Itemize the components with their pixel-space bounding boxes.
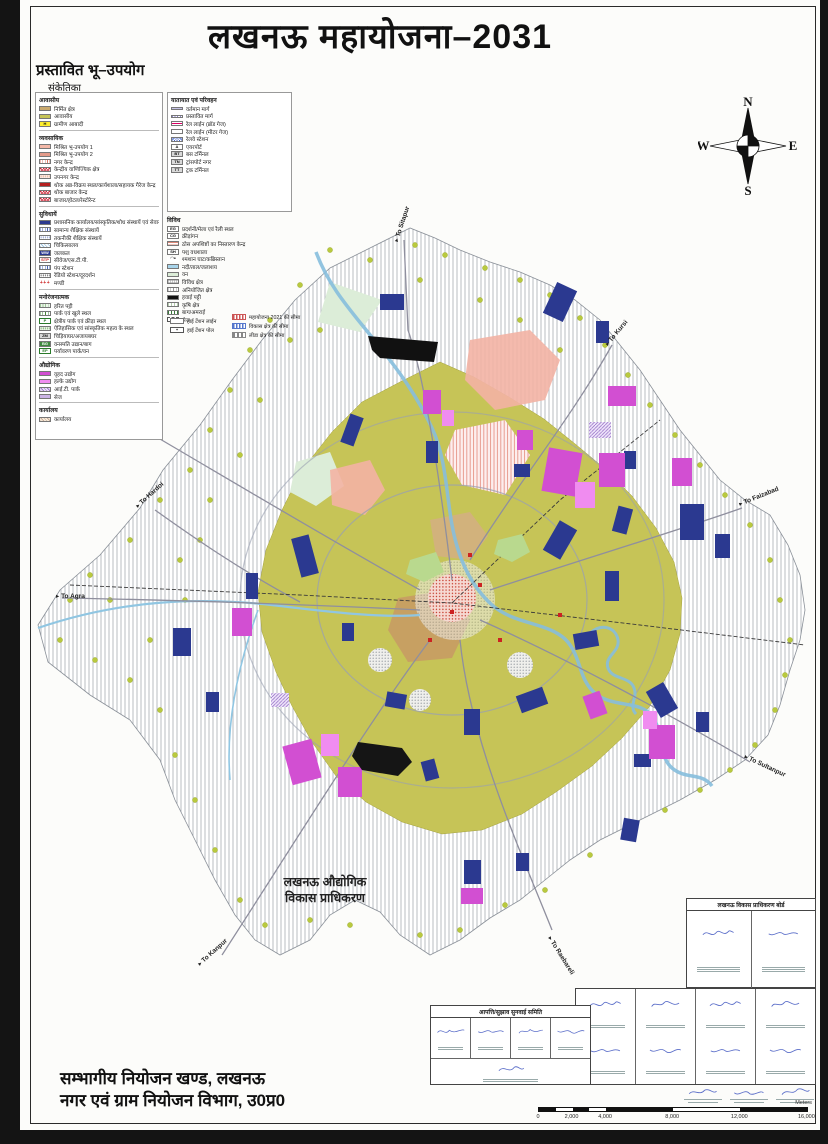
agri-swatch [167, 302, 179, 307]
p-hatch-pink-swatch [39, 159, 51, 164]
legend-item-label: वर्तमान मार्ग [186, 105, 209, 113]
p-hatch-orange-swatch [167, 241, 179, 246]
p-dots-pink-swatch [39, 174, 51, 179]
legend-ht-lines: हाई टेंशन लाईन+हाई टेंशन पोल [170, 316, 230, 334]
legend-item-label: हाई टेंशन लाईन [187, 317, 216, 325]
legend-item-label: ऐतिहासिक एवं सांस्कृतिक महत्व के स्थल [54, 325, 134, 333]
legend-item-label: सेज [54, 393, 62, 401]
legend-item-label: प्रशासनिक कार्यालय/सांस्कृतिक/शोध संस्था… [54, 219, 159, 227]
ind2-swatch [39, 379, 51, 384]
legend-item-label: पार्क एवं खुले स्थल [54, 309, 91, 317]
signature-cell [471, 1018, 511, 1058]
legend-item-label: विविध क्षेत्र [182, 278, 203, 286]
legend-item: BTबस टर्मिनल [171, 151, 288, 159]
legend-item: प्रस्तावित मार्ग [171, 113, 288, 121]
legend-item-label: एयरपोर्ट [186, 143, 202, 151]
legend-item: बाजार/होटल/रेस्टोरेन्ट [39, 196, 159, 204]
p-vlines-grey-swatch [167, 287, 179, 292]
legend-boundaries: महायोजना 2021 की सीमाविकास क्षेत्र की सी… [232, 312, 310, 339]
p-dots-green-swatch [39, 326, 51, 331]
legend-item: आवासीय [39, 113, 159, 121]
sez-swatch [39, 394, 51, 399]
legend-item: हरित पट्टी [39, 302, 159, 310]
legend-item-label: श्मशान घाट/कब्रिस्तान [182, 255, 225, 263]
legend-item: रेल लाईन (ब्रॉड गेज) [171, 120, 288, 128]
legend-panel-landuse: आवासीयनिर्मित क्षेत्रआवासीयHग्रामीण आबाद… [35, 92, 163, 440]
compass-rose: N S E W [698, 96, 798, 196]
lt-grey-swatch: TT [171, 167, 183, 173]
legend-item-label: वनस्पति उद्यान/बाग [54, 340, 92, 348]
legend-item: रेडियो स्टेशन/दूरदर्शन [39, 272, 159, 280]
legend-item-label: प्रस्तावित मार्ग [186, 113, 213, 121]
lt-green-swatch: BG [39, 341, 51, 347]
compass-w: W [698, 138, 710, 153]
p-vlines-blue-swatch [39, 265, 51, 270]
compass-n: N [743, 96, 753, 109]
scale-tick-label: 16,000 [798, 1114, 815, 1120]
legend-item-label: हल्के उद्योग [54, 378, 76, 386]
scale-tick-label: 12,000 [731, 1114, 748, 1120]
signature-cell [551, 1018, 590, 1058]
metro-x-swatch [171, 137, 183, 142]
p-dots-black-swatch [39, 273, 51, 278]
legend-item: STPसीवेज/एस.टी.पी. [39, 257, 159, 265]
scale-bar-blocks [538, 1107, 808, 1112]
legend-item: TNट्रांसपोर्ट नगर [171, 158, 288, 166]
legend-item-label: मण्डी [54, 279, 64, 287]
legend-item-label: महायोजना 2021 की सीमा [249, 313, 300, 321]
p-hatch-purple-swatch [39, 387, 51, 392]
legend-section: आवासीयनिर्मित क्षेत्रआवासीयHग्रामीण आबाद… [39, 96, 159, 131]
lt-white-swatch: A [171, 144, 183, 150]
legend-item: वर्तमान मार्ग [171, 105, 288, 113]
legend-item: निर्मित क्षेत्र [39, 105, 159, 113]
legend-item-label: तकनीकी शैक्षिक संस्थायें [54, 234, 102, 242]
scale-tick-label: 4,000 [598, 1114, 612, 1120]
publisher-block: सम्भागीय नियोजन खण्ड, लखनऊ नगर एवं ग्राम… [60, 1068, 285, 1112]
legend-item-label: आवासीय [54, 113, 72, 121]
committee-table-header: आपत्ति/सुझाव सुनवाई समिति [431, 1006, 590, 1018]
legend-item: तकनीकी शैक्षिक संस्थायें [39, 234, 159, 242]
legend-section: कार्यालयकार्यालय [39, 406, 159, 425]
lt-greenb-swatch: P [39, 318, 51, 324]
p-dots-blue-swatch [39, 235, 51, 240]
legend-section: व्यवसायिकमिश्रित भू-उपयोग 1मिश्रित भू-उप… [39, 134, 159, 207]
residential-swatch [39, 114, 51, 119]
legend-item-label: नदी/ताल/जलाशय [182, 263, 217, 271]
legend-item: सेज [39, 393, 159, 401]
compass-s: S [744, 183, 751, 196]
mixed2-swatch [39, 152, 51, 157]
legend-item: ऐतिहासिक एवं सांस्कृतिक महत्व के स्थल [39, 325, 159, 333]
legend-item-label: वृहद उद्योग [54, 370, 75, 378]
legend-section-heading: विविध [167, 216, 292, 224]
legend-item: थोक बाजार केन्द्र [39, 188, 159, 196]
legend-item-label: क्षेत्रीय पार्क एवं क्रीड़ा स्थल [54, 317, 106, 325]
legend-item: लीडा क्षेत्र की सीमा [232, 330, 310, 339]
mixed1-swatch [39, 144, 51, 149]
lt-white-swatch: SH [167, 249, 179, 255]
legend-item: मिश्रित भू-उपयोग 1 [39, 143, 159, 151]
builtup-swatch [39, 106, 51, 111]
legend-item-label: रेडियो स्टेशन/दूरदर्शन [54, 272, 95, 280]
legend-item-label: ट्रक टर्मिनल [186, 166, 209, 174]
legend-item-label: रेल लाईन (मीटर गेज) [186, 128, 228, 136]
legend-item-label: बाग/अमराई [182, 309, 205, 317]
legend-item: नगर केन्द्र [39, 158, 159, 166]
legend-section-heading: आवासीय [39, 96, 159, 104]
legend-item: कार्यालय [39, 415, 159, 423]
lida-area-label: लखनऊ औद्योगिक विकास प्राधिकरण [250, 874, 400, 907]
scale-tick-label: 0 [536, 1114, 539, 1120]
legend-item-label: जलकल [54, 249, 70, 257]
lt-white-swatch: CG [167, 233, 179, 239]
legend-item: अनियोजित क्षेत्र [167, 286, 292, 294]
scale-tick-label: 8,000 [665, 1114, 679, 1120]
road-prop-swatch [171, 115, 183, 118]
greenbelt-swatch [39, 303, 51, 308]
legend-item-label: रेलवे स्टेशन [186, 135, 208, 143]
legend-item-label: कृषि क्षेत्र [182, 301, 199, 309]
legend-item: रेलवे स्टेशन [171, 135, 288, 143]
legend-item-label: हवाई पट्टी [182, 293, 201, 301]
map-title: लखनऊ महायोजना–2031 [150, 12, 610, 58]
map-subtitle: प्रस्तावित भू–उपयोग [36, 60, 144, 80]
legend-item: BGवनस्पति उद्यान/बाग [39, 340, 159, 348]
legend-section-heading: व्यवसायिक [39, 134, 159, 142]
committee-signature-table: आपत्ति/सुझाव सुनवाई समिति [430, 1005, 591, 1085]
lt-navy-swatch: WW [39, 250, 51, 256]
legend-panel-transport: यातायात एवं परिवहनवर्तमान मार्गप्रस्तावि… [167, 92, 292, 212]
legend-item: WWजलकल [39, 249, 159, 257]
legend-item: हल्के उद्योग [39, 378, 159, 386]
wholesale-swatch [39, 182, 51, 187]
legend-item: SHपशु वधशाला [167, 248, 292, 256]
legend-item: Aएयरपोर्ट [171, 143, 288, 151]
signature-cell [511, 1018, 551, 1058]
legend-item: वन [167, 271, 292, 279]
p-cross-red-swatch [39, 197, 51, 202]
legend-item: EPपर्यावरण पार्क/वन [39, 347, 159, 355]
forest-swatch [167, 272, 179, 277]
legend-item: थोक अन्न-विक्रय स्थल/कार्यशाला/सहायक गैर… [39, 181, 159, 189]
legend-item-label: निर्मित क्षेत्र [54, 105, 75, 113]
legend-section: औद्योगिकवृहद उद्योगहल्के उद्योगआई.टी. पा… [39, 361, 159, 403]
lt-grey-swatch: TN [171, 159, 183, 165]
lt-yellow-swatch: H [39, 121, 51, 127]
legend-item: उपनगर केन्द्र [39, 173, 159, 181]
legend-section: विविधEGप्रदर्शनी/मेला एवं रैली स्थलCGक्र… [167, 216, 292, 326]
signature-cell [431, 1059, 590, 1087]
legend-section: मनोरंजनात्मकहरित पट्टीपार्क एवं खुले स्थ… [39, 293, 159, 358]
legend-item-label: हाई टेंशन पोल [187, 326, 214, 334]
htpole-swatch: + [170, 327, 184, 333]
legend-item: पंप स्टेशन [39, 264, 159, 272]
legend-item: पार्क एवं खुले स्थल [39, 309, 159, 317]
legend-item-label: उपनगर केन्द्र [54, 173, 79, 181]
p-cross-grey-swatch [167, 279, 179, 284]
legend-item: TTट्रक टर्मिनल [171, 166, 288, 174]
river-swatch [167, 264, 179, 269]
scale-bar: Meters 02,0004,0008,00012,00016,000 [538, 1100, 812, 1122]
b-dash-grey-swatch [232, 332, 246, 338]
legend-item-label: हरित पट्टी [54, 302, 73, 310]
rail-meter-swatch [171, 129, 183, 134]
legend-item: मिश्रित भू-उपयोग 2 [39, 150, 159, 158]
legend-item: चिकित्सालय [39, 241, 159, 249]
plus-red-swatch: +++ [39, 281, 51, 286]
signature-cell [636, 989, 696, 1084]
legend-item-label: अनियोजित क्षेत्र [182, 286, 212, 294]
orchard-swatch [167, 310, 179, 315]
b-dash-red-swatch [232, 314, 246, 320]
board-table-header: लखनऊ विकास प्राधिकरण बोर्ड [687, 899, 815, 911]
lt-grey-swatch: BT [171, 151, 183, 157]
legend-item-label: लीडा क्षेत्र की सीमा [249, 331, 284, 339]
legend-section-heading: कार्यालय [39, 406, 159, 414]
board-signature-table: लखनऊ विकास प्राधिकरण बोर्ड [686, 898, 816, 988]
legend-section-heading: यातायात एवं परिवहन [171, 96, 288, 104]
lt-stp-swatch: STP [39, 257, 51, 263]
lt-greenb-swatch: EP [39, 348, 51, 354]
legend-item-label: थोक अन्न-विक्रय स्थल/कार्यशाला/सहायक गैर… [54, 181, 156, 189]
scanned-map-sheet: { "page": { "title": "लखनऊ महायोजना–2031… [0, 0, 828, 1144]
p-cross-red-swatch [39, 190, 51, 195]
p-vlines-blue-swatch [39, 227, 51, 232]
airstrip-swatch [167, 295, 179, 300]
signature-cell [696, 989, 756, 1084]
legend-item-label: थोक बाजार केन्द्र [54, 188, 87, 196]
legend-item: केन्द्रीय वाणिज्यिक क्षेत्र [39, 166, 159, 174]
legend-item-label: वन [182, 271, 188, 279]
htline-swatch [170, 318, 184, 324]
legend-item: सामान्य शैक्षिक संस्थायें [39, 226, 159, 234]
legend-item-label: चिड़ियाघर/अजायबघर [54, 332, 96, 340]
legend-item-label: ग्रामीण आबादी [54, 120, 83, 128]
legend-section-heading: सुविधायें [39, 210, 159, 218]
legend-item: Pक्षेत्रीय पार्क एवं क्रीड़ा स्थल [39, 317, 159, 325]
signature-cell [752, 911, 816, 988]
compass-e: E [789, 138, 798, 153]
rail-broad-swatch [171, 121, 183, 126]
legend-item-label: बस टर्मिनल [186, 151, 209, 159]
cremation-swatch: ◠• [167, 257, 179, 262]
legend-item: विकास क्षेत्र की सीमा [232, 321, 310, 330]
lt-grey-swatch: ZM [39, 333, 51, 339]
legend-item: Hग्रामीण आबादी [39, 120, 159, 128]
legend-item-label: नगर केन्द्र [54, 158, 73, 166]
legend-item-label: पशु वधशाला [182, 248, 207, 256]
lt-white-swatch: EG [167, 226, 179, 232]
legend-item-label: सामान्य शैक्षिक संस्थायें [54, 226, 99, 234]
legend-section: सुविधायेंप्रशासनिक कार्यालय/सांस्कृतिक/श… [39, 210, 159, 290]
legend-item: वृहद उद्योग [39, 370, 159, 378]
legend-item: +++मण्डी [39, 279, 159, 287]
publisher-line1: सम्भागीय नियोजन खण्ड, लखनऊ [60, 1068, 285, 1090]
legend-section-heading: औद्योगिक [39, 361, 159, 369]
legend-item-label: ठोस अपशिष्टों का निस्तारण केन्द्र [182, 240, 245, 248]
signature-cell [687, 911, 752, 988]
p-hatch-ltblue-swatch [39, 243, 51, 248]
legend-item-label: आई.टी. पार्क [54, 385, 80, 393]
publisher-line2: नगर एवं ग्राम नियोजन विभाग, उ0प्र0 [60, 1090, 285, 1112]
legend-item-label: प्रदर्शनी/मेला एवं रैली स्थल [182, 225, 234, 233]
legend-item-label: विकास क्षेत्र की सीमा [249, 322, 288, 330]
legend-item: नदी/ताल/जलाशय [167, 263, 292, 271]
legend-item: कृषि क्षेत्र [167, 301, 292, 309]
legend-item: ◠•श्मशान घाट/कब्रिस्तान [167, 255, 292, 263]
legend-section: यातायात एवं परिवहनवर्तमान मार्गप्रस्तावि… [171, 96, 288, 175]
legend-item: रेल लाईन (मीटर गेज) [171, 128, 288, 136]
ind1-swatch [39, 371, 51, 376]
legend-item-label: रेल लाईन (ब्रॉड गेज) [186, 120, 226, 128]
p-hatch-tan-swatch [39, 417, 51, 422]
legend-item-label: पर्यावरण पार्क/वन [54, 347, 89, 355]
legend-item: विविध क्षेत्र [167, 278, 292, 286]
legend-item: ZMचिड़ियाघर/अजायबघर [39, 332, 159, 340]
b-dash-blue-swatch [232, 323, 246, 329]
legend-item-label: मिश्रित भू-उपयोग 2 [54, 150, 93, 158]
legend-item-label: चिकित्सालय [54, 241, 78, 249]
legend-item: महायोजना 2021 की सीमा [232, 312, 310, 321]
p-cross-red-swatch [39, 167, 51, 172]
road-exist-swatch [171, 107, 183, 110]
legend-item-label: क्रीड़ांगन [182, 233, 198, 241]
signature-cell [756, 989, 815, 1084]
legend-item-label: पंप स्टेशन [54, 264, 73, 272]
p-vlines-green-swatch [39, 311, 51, 316]
legend-item-label: केन्द्रीय वाणिज्यिक क्षेत्र [54, 166, 99, 174]
legend-item: आई.टी. पार्क [39, 385, 159, 393]
officials-signature-table [575, 988, 816, 1085]
scale-tick-label: 2,000 [565, 1114, 579, 1120]
navy-swatch [39, 220, 51, 225]
legend-item: EGप्रदर्शनी/मेला एवं रैली स्थल [167, 225, 292, 233]
legend-item: हवाई पट्टी [167, 293, 292, 301]
scale-unit-label: Meters [795, 1100, 812, 1106]
legend-item: हाई टेंशन लाईन [170, 316, 230, 325]
legend-section-heading: मनोरंजनात्मक [39, 293, 159, 301]
legend-item-label: ट्रांसपोर्ट नगर [186, 158, 211, 166]
signature-cell [431, 1018, 471, 1058]
legend-item: ठोस अपशिष्टों का निस्तारण केन्द्र [167, 240, 292, 248]
legend-item-label: कार्यालय [54, 415, 71, 423]
legend-item: प्रशासनिक कार्यालय/सांस्कृतिक/शोध संस्था… [39, 219, 159, 227]
legend-item-label: मिश्रित भू-उपयोग 1 [54, 143, 93, 151]
legend-item-label: सीवेज/एस.टी.पी. [54, 257, 88, 265]
legend-item: CGक्रीड़ांगन [167, 233, 292, 241]
legend-item-label: बाजार/होटल/रेस्टोरेन्ट [54, 196, 96, 204]
legend-item: +हाई टेंशन पोल [170, 325, 230, 334]
